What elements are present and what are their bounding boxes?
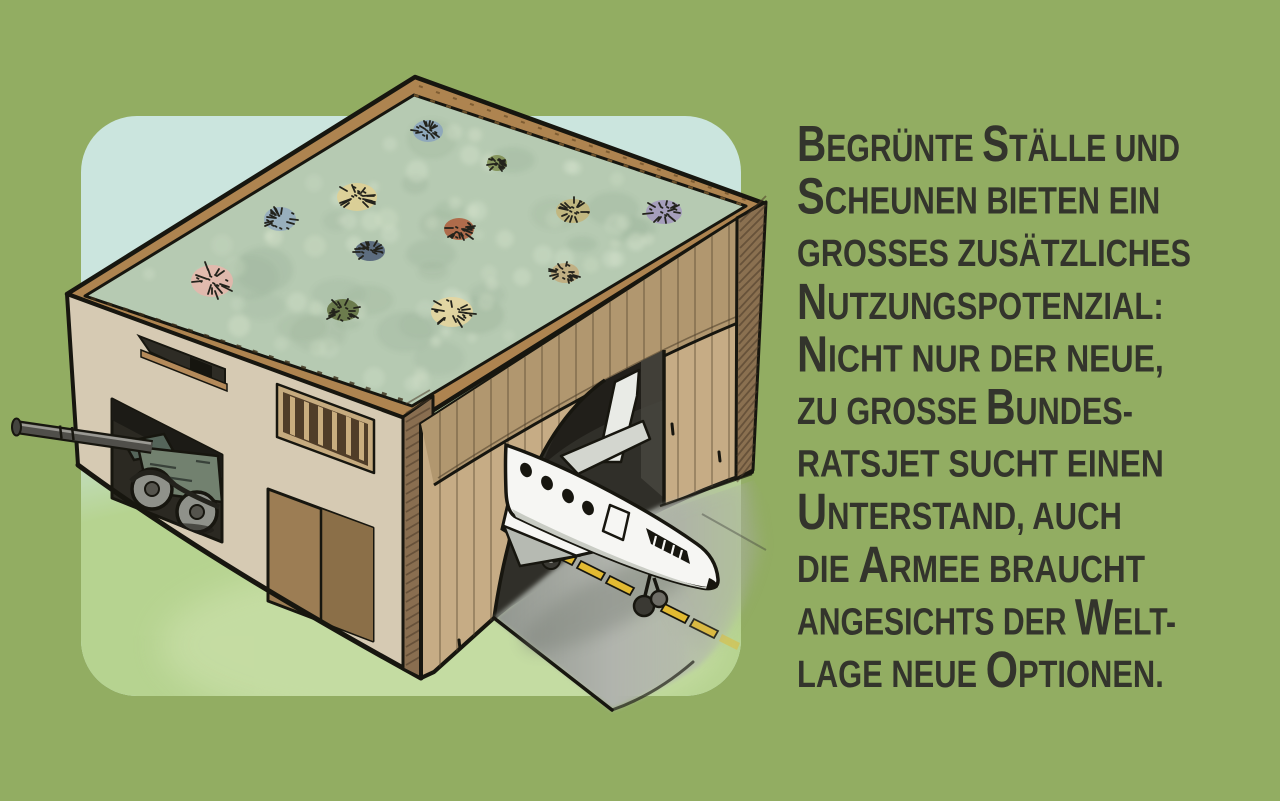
svg-text:ZU GROSSE BUNDES-: ZU GROSSE BUNDES- — [797, 378, 1133, 435]
svg-text:NICHT NUR DER NEUE,: NICHT NUR DER NEUE, — [797, 325, 1164, 382]
svg-text:DIE ARMEE BRAUCHT: DIE ARMEE BRAUCHT — [797, 536, 1145, 593]
svg-text:GROSSES ZUSÄTZLICHES: GROSSES ZUSÄTZLICHES — [797, 233, 1191, 275]
svg-text:UNTERSTAND, AUCH: UNTERSTAND, AUCH — [797, 483, 1122, 540]
svg-text:ANGESICHTS DER WELT-: ANGESICHTS DER WELT- — [797, 588, 1176, 646]
svg-text:NUTZUNGSPOTENZIAL:: NUTZUNGSPOTENZIAL: — [797, 273, 1164, 330]
svg-text:RATSJET SUCHT EINEN: RATSJET SUCHT EINEN — [797, 443, 1164, 485]
svg-text:LAGE NEUE OPTIONEN.: LAGE NEUE OPTIONEN. — [797, 641, 1164, 698]
svg-text:BEGRÜNTE STÄLLE UND: BEGRÜNTE STÄLLE UND — [797, 114, 1180, 172]
svg-text:SCHEUNEN BIETEN EIN: SCHEUNEN BIETEN EIN — [797, 168, 1160, 225]
